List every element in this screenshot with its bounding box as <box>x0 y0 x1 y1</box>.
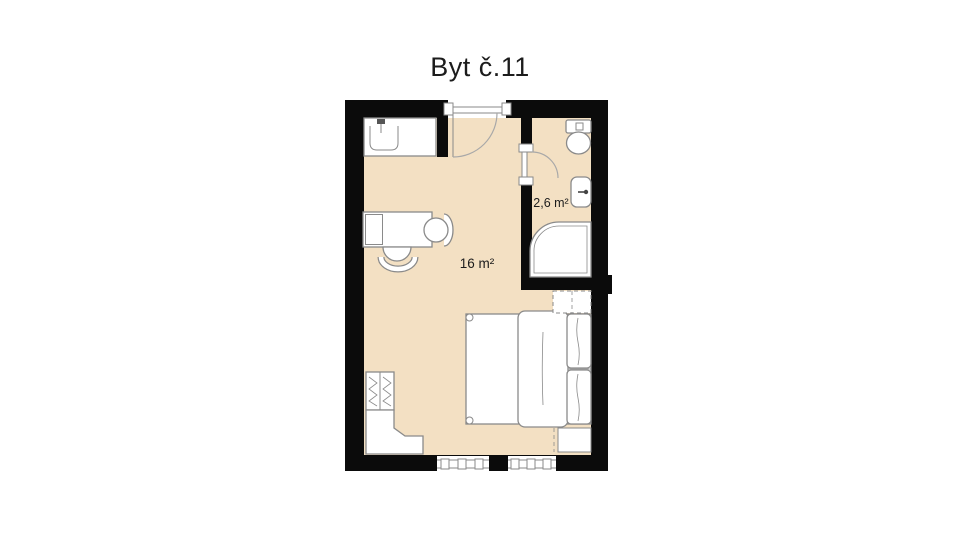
bathroom-area-label: 2,6 m² <box>533 196 568 210</box>
door-jamb <box>519 144 533 152</box>
washbasin <box>571 177 591 207</box>
desk <box>363 212 432 247</box>
door-jamb <box>519 177 533 185</box>
toilet-bowl <box>567 132 591 154</box>
window-left <box>437 456 489 471</box>
flush-button <box>576 123 583 130</box>
kitchen-sink-counter <box>364 118 436 156</box>
floor-plan: 16 m² 2,6 m² <box>0 0 960 540</box>
bed-post <box>466 417 473 424</box>
double-bed <box>466 311 591 427</box>
duvet <box>518 311 568 427</box>
door-leaf <box>522 152 527 177</box>
small-wardrobe <box>366 372 394 410</box>
bedside-cabinet <box>554 428 591 452</box>
shower <box>530 222 591 277</box>
door-jamb <box>502 103 511 115</box>
bed-post <box>466 314 473 321</box>
chair-seat <box>424 218 448 242</box>
floor-plan-page: Byt č.11 <box>0 0 960 540</box>
toilet <box>566 120 591 154</box>
faucet-icon <box>377 119 385 124</box>
main-room-area-label: 16 m² <box>460 256 495 271</box>
window-right <box>508 456 556 471</box>
door-jamb <box>444 103 453 115</box>
built-in-wardrobe <box>553 291 591 313</box>
faucet-icon <box>584 190 588 194</box>
